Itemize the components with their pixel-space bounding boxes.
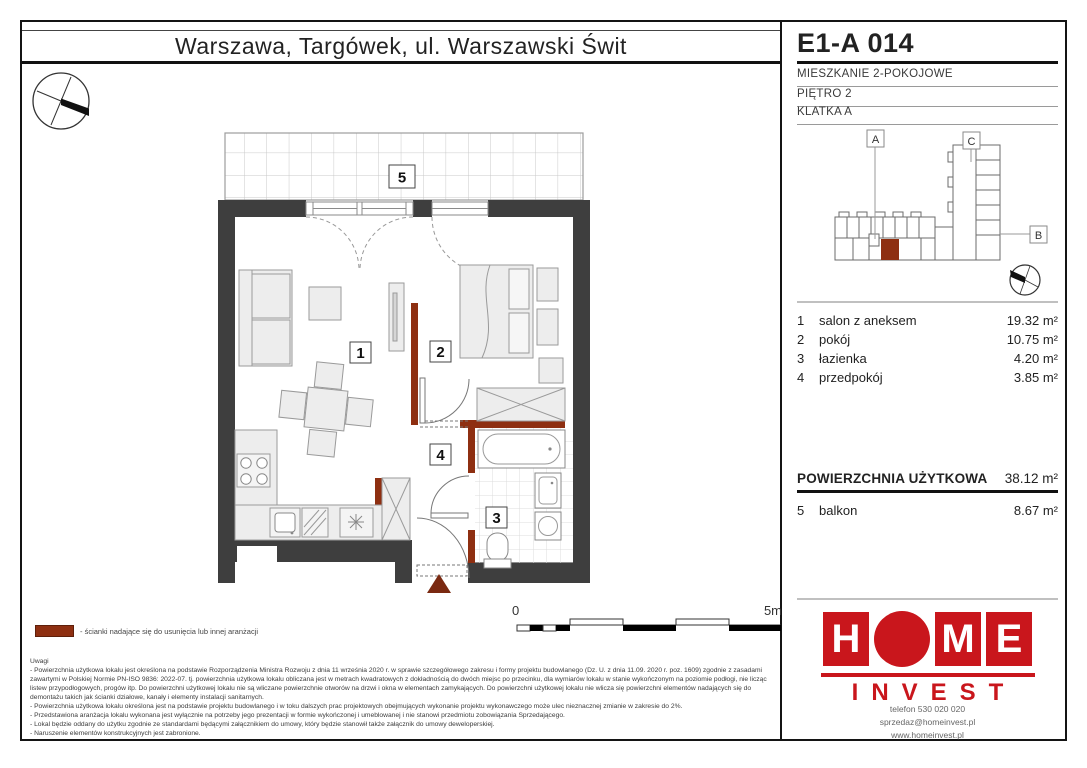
room-number: 2 bbox=[797, 330, 819, 349]
room-number: 4 bbox=[797, 368, 819, 387]
windows bbox=[306, 202, 488, 273]
contact-email: sprzedaz@homeinvest.pl bbox=[797, 716, 1058, 729]
room-area: 8.67 m² bbox=[1014, 501, 1058, 520]
home-invest-logo: H M E INVEST bbox=[797, 610, 1058, 707]
scale-start-label: 0 bbox=[512, 603, 519, 618]
room-name: salon z aneksem bbox=[819, 311, 1007, 330]
logo-letter-e: E bbox=[986, 612, 1032, 666]
building-key-plan: A C B bbox=[825, 122, 1065, 302]
room-label-5: 5 bbox=[398, 170, 406, 187]
room-list: 1 salon z aneksem 19.32 m² 2 pokój 10.75… bbox=[797, 311, 1058, 387]
bathtub bbox=[478, 430, 565, 468]
bathroom bbox=[475, 428, 573, 568]
notes-body: - Powierzchnia użytkowa lokalu jest okre… bbox=[30, 666, 778, 738]
staircase-c-label: C bbox=[968, 136, 976, 148]
room-row: 2 pokój 10.75 m² bbox=[797, 330, 1058, 349]
room-area: 4.20 m² bbox=[1014, 349, 1058, 368]
room-label-3: 3 bbox=[492, 510, 500, 527]
logo-letter-h: H bbox=[823, 612, 869, 666]
room-area: 10.75 m² bbox=[1007, 330, 1058, 349]
logo-home-letters: H M E bbox=[823, 610, 1032, 668]
room-name: pokój bbox=[819, 330, 1007, 349]
room-name: przedpokój bbox=[819, 368, 1014, 387]
notes-block: Uwagi - Powierzchnia użytkowa lokalu jes… bbox=[30, 657, 778, 738]
floor-plan-sheet: Warszawa, Targówek, ul. Warszawski Świt bbox=[0, 0, 1087, 768]
room-area: 3.85 m² bbox=[1014, 368, 1058, 387]
room-name: balkon bbox=[819, 501, 1014, 520]
logo-rule bbox=[821, 673, 1035, 677]
unit-location-highlight bbox=[881, 239, 899, 260]
room-number: 5 bbox=[797, 501, 819, 520]
room-name: łazienka bbox=[819, 349, 1014, 368]
room-row: 3 łazienka 4.20 m² bbox=[797, 349, 1058, 368]
unit-id-underline bbox=[797, 61, 1058, 64]
section-divider bbox=[797, 598, 1058, 600]
compass-icon bbox=[33, 73, 89, 129]
contact-phone: telefon 530 020 020 bbox=[797, 703, 1058, 716]
usable-area-label: POWIERZCHNIA UŻYTKOWA bbox=[797, 471, 1005, 486]
room-number: 3 bbox=[797, 349, 819, 368]
tv-cabinet bbox=[389, 283, 404, 351]
balcony-row: 5 balkon 8.67 m² bbox=[797, 501, 1058, 520]
toilet bbox=[484, 533, 511, 568]
removable-wall-swatch bbox=[35, 625, 74, 637]
interior-doors bbox=[417, 378, 469, 578]
usable-area-value: 38.12 m² bbox=[1005, 471, 1058, 486]
room-label-2: 2 bbox=[436, 344, 444, 361]
usable-area-total: POWIERZCHNIA UŻYTKOWA 38.12 m² bbox=[797, 466, 1058, 493]
bedroom-wardrobe bbox=[477, 388, 565, 421]
nightstand bbox=[537, 309, 558, 345]
room-label-1: 1 bbox=[356, 345, 364, 362]
contact-website: www.homeinvest.pl bbox=[797, 729, 1058, 742]
hall-wardrobe bbox=[382, 478, 410, 540]
nightstand bbox=[537, 268, 558, 301]
legend-text: - ścianki nadające się do usunięcia lub … bbox=[80, 627, 258, 636]
contact-block: telefon 530 020 020 sprzedaz@homeinvest.… bbox=[797, 703, 1058, 741]
notes-title: Uwagi bbox=[30, 657, 778, 666]
logo-letter-m: M bbox=[935, 612, 981, 666]
room-label-4: 4 bbox=[436, 447, 445, 464]
room-area: 19.32 m² bbox=[1007, 311, 1058, 330]
washbasin bbox=[535, 473, 561, 508]
staircase-a-label: A bbox=[872, 134, 880, 146]
dresser bbox=[539, 358, 563, 383]
washing-machine bbox=[535, 512, 561, 540]
unit-id: E1-A 014 bbox=[797, 28, 1058, 59]
scale-bar: 0 5m bbox=[512, 603, 781, 631]
section-divider bbox=[797, 301, 1058, 303]
logo-o-circle-icon bbox=[874, 611, 930, 667]
staircase-b-label: B bbox=[1035, 230, 1042, 242]
floor-plan-canvas: 5 1 2 4 3 0 5m bbox=[20, 63, 781, 655]
legend: - ścianki nadające się do usunięcia lub … bbox=[35, 625, 258, 637]
side-table bbox=[309, 287, 341, 320]
sofa bbox=[239, 270, 292, 366]
room-row: 4 przedpokój 3.85 m² bbox=[797, 368, 1058, 387]
scale-end-label: 5m bbox=[764, 603, 781, 618]
page-title: Warszawa, Targówek, ul. Warszawski Świt bbox=[22, 30, 780, 64]
room-number: 1 bbox=[797, 311, 819, 330]
dining-set bbox=[275, 358, 376, 460]
unit-type: MIESZKANIE 2-POKOJOWE bbox=[797, 68, 1058, 87]
unit-floor: PIĘTRO 2 bbox=[797, 88, 1058, 107]
bed bbox=[460, 265, 533, 358]
compass-small-icon bbox=[1010, 265, 1040, 295]
room-row: 1 salon z aneksem 19.32 m² bbox=[797, 311, 1058, 330]
entrance-marker bbox=[427, 574, 451, 593]
